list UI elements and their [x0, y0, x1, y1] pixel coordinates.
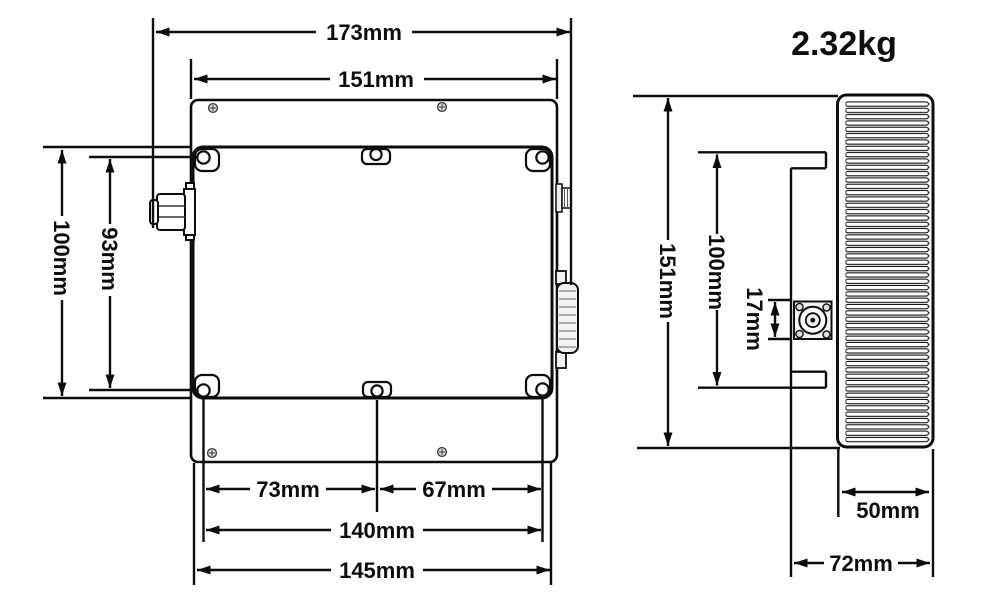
screw-icon [438, 448, 447, 457]
dim-overall-width-label: 173mm [326, 20, 402, 45]
dim-heatsink-depth-label: 50mm [856, 498, 920, 523]
dim-hole-span-vertical-label: 93mm [97, 227, 122, 291]
sma-connector [556, 184, 571, 212]
screw-icon [209, 104, 218, 113]
dim-connector-offset-label: 17mm [742, 287, 767, 351]
n-connector-face [794, 302, 832, 340]
dim-side-body-height-label: 100mm [704, 234, 729, 310]
top-view: 173mm 151mm 100mm 93mm 73mm 67mm 140mm 1… [43, 18, 578, 585]
dsub-connector [556, 271, 578, 368]
screw-icon [208, 449, 217, 458]
side-view: 2.32kg 151mm 100mm 17mm 50mm 72mm [633, 25, 933, 577]
rf-connector-side [150, 183, 195, 240]
dim-overall-height-label: 151mm [655, 243, 680, 319]
dim-overall-depth-label: 72mm [829, 551, 893, 576]
weight-label: 2.32kg [791, 25, 897, 63]
dim-hole-span-horizontal-label: 140mm [339, 518, 415, 543]
dim-hole-offset-right-label: 67mm [422, 477, 486, 502]
heatsink-fins [846, 101, 930, 443]
dim-hole-offset-left-label: 73mm [256, 477, 320, 502]
dim-body-height-label: 100mm [49, 220, 74, 296]
screw-icon [438, 103, 447, 112]
enclosure-body [193, 147, 552, 398]
drawing-canvas: 173mm 151mm 100mm 93mm 73mm 67mm 140mm 1… [0, 0, 1000, 605]
dim-body-width-label: 145mm [339, 558, 415, 583]
dimension-drawing: 173mm 151mm 100mm 93mm 73mm 67mm 140mm 1… [0, 0, 1000, 605]
dim-plate-width-label: 151mm [338, 67, 414, 92]
